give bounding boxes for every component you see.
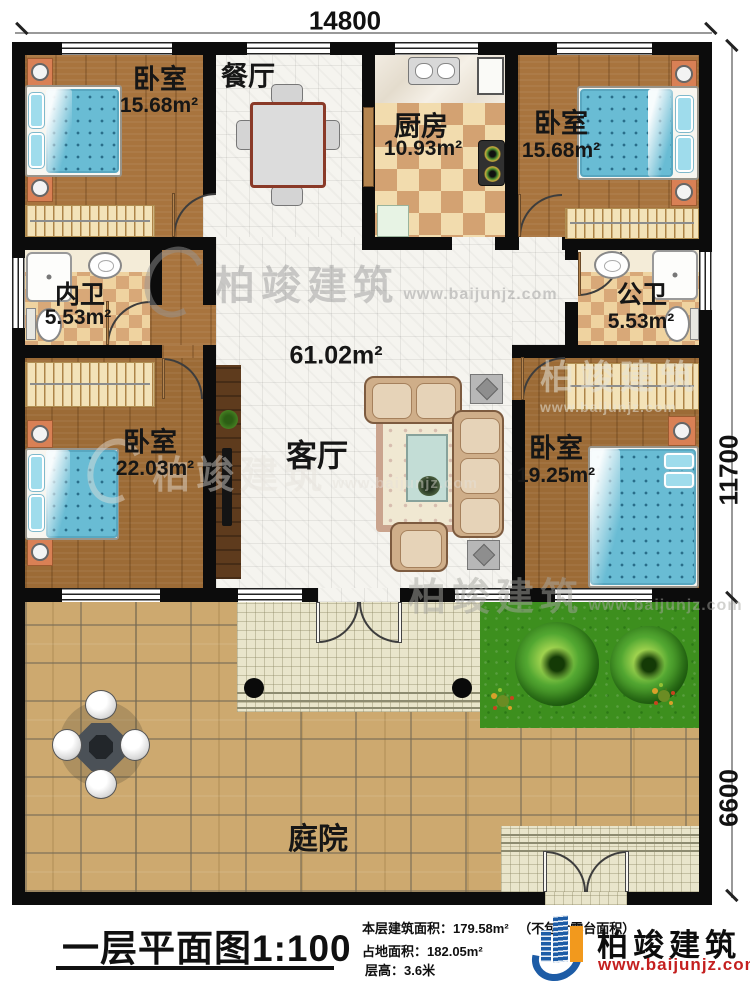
entry-step-line: [501, 842, 699, 844]
room-area-bath-public: 5.53m²: [608, 310, 675, 334]
wall-segment: [12, 42, 25, 905]
room-area-kitchen: 10.93m²: [384, 137, 462, 161]
nightstand: [27, 420, 53, 448]
pillow: [29, 93, 44, 128]
sofa-cushion: [460, 418, 500, 454]
door-leaf: [162, 358, 165, 399]
room-label-bedroom-br: 卧室: [529, 427, 583, 466]
garden-chair: [120, 729, 150, 761]
sofa-cushion: [400, 530, 442, 568]
shrub: [497, 695, 509, 707]
blanket-fold: [46, 89, 72, 173]
end-table: [470, 374, 503, 404]
porch-step-line: [237, 692, 480, 694]
stat-land-area: 占地面积：182.05m²: [362, 941, 483, 960]
porch-column: [452, 678, 472, 698]
logo-building: [570, 926, 583, 962]
stat-floor-area-value: 179.58m²: [453, 921, 509, 936]
wall-segment: [512, 400, 525, 590]
room-label-bedroom-bl: 卧室: [123, 421, 177, 460]
stat-floor-height-label: 层高：: [365, 963, 404, 978]
sofa: [452, 410, 504, 538]
wall-segment: [203, 55, 216, 195]
window: [557, 42, 652, 55]
room-area-bedroom-br: 19.25m²: [517, 464, 595, 488]
gate-door-leaf: [543, 851, 547, 892]
wall-segment: [505, 55, 518, 237]
blanket-fold: [46, 450, 70, 538]
stat-land-area-value: 182.05m²: [427, 944, 483, 959]
fridge: [477, 57, 504, 95]
window: [12, 258, 25, 328]
nightstand: [27, 58, 53, 86]
door-leaf: [578, 252, 581, 296]
garden-table: [77, 723, 125, 771]
wardrobe: [25, 362, 155, 407]
door-leaf: [172, 193, 175, 237]
end-table: [467, 540, 500, 570]
sofa-cushion: [460, 498, 500, 534]
room-label-bedroom-tr: 卧室: [534, 102, 588, 141]
title-underline: [56, 966, 334, 970]
room-area-living: 61.02m²: [289, 342, 382, 371]
right-lower-dimension-label: 6600: [714, 769, 745, 827]
nightstand: [27, 174, 53, 202]
toilet-tank: [26, 308, 36, 340]
sofa-cushion: [372, 383, 412, 419]
plant: [219, 410, 238, 429]
sink-basin: [415, 63, 433, 79]
coffee-table: [406, 434, 448, 502]
garden-chair: [85, 769, 117, 799]
dining-chair: [271, 186, 303, 206]
toilet-tank: [690, 308, 699, 340]
window: [555, 588, 652, 602]
main-door-leaf: [398, 602, 402, 643]
window: [62, 588, 160, 602]
kitchen-counter: [377, 205, 409, 237]
pillow: [676, 96, 693, 132]
wall-segment: [495, 237, 519, 250]
logo-building: [541, 930, 551, 962]
wall-segment: [512, 345, 712, 358]
porch-column: [244, 678, 264, 698]
sofa-cushion: [460, 458, 500, 494]
wall-segment: [565, 250, 578, 260]
window: [62, 42, 172, 55]
wardrobe: [565, 208, 699, 239]
company-website: www.baijunjz.com: [598, 955, 750, 975]
window: [247, 42, 330, 55]
pillow: [676, 136, 693, 172]
sink-basin: [437, 63, 455, 79]
nightstand: [668, 416, 696, 446]
burner: [484, 166, 501, 182]
garden-chair: [85, 690, 117, 720]
pillow: [29, 133, 44, 168]
window: [455, 588, 510, 602]
door-leaf: [521, 357, 524, 400]
room-area-bath-inner: 5.53m²: [45, 306, 112, 330]
room-area-bedroom-tl: 15.68m²: [120, 94, 198, 118]
room-label-bath-public: 公卫: [617, 275, 667, 311]
stove: [478, 140, 505, 186]
wall-segment: [375, 237, 452, 250]
right-upper-dimension-label: 11700: [714, 435, 745, 506]
porch-step-line: [237, 707, 480, 709]
tree: [610, 626, 688, 704]
room-area-bedroom-bl: 22.03m²: [116, 457, 194, 481]
wall-segment: [12, 345, 162, 358]
doorway-floor-patch: [162, 345, 203, 358]
porch-step-line: [237, 700, 480, 702]
kitchen-sink: [408, 57, 460, 85]
wall-segment: [150, 250, 162, 305]
blanket-fold: [648, 89, 673, 177]
wall-segment: [565, 302, 578, 345]
wall-segment: [12, 237, 216, 250]
logo-building: [553, 915, 568, 963]
entry-step-line: [501, 850, 699, 852]
main-door-leaf: [316, 602, 320, 643]
shrub: [658, 690, 670, 702]
gate-door-leaf: [625, 851, 629, 892]
wall-segment: [203, 358, 216, 590]
room-label-dining: 餐厅: [221, 55, 275, 94]
room-label-courtyard: 庭院: [288, 814, 348, 858]
plan-title: 一层平面图1:100: [62, 918, 352, 972]
garden-chair: [52, 729, 82, 761]
pillow: [29, 495, 44, 531]
window: [395, 42, 478, 55]
wall-segment: [699, 42, 712, 905]
dining-table: [250, 102, 326, 188]
top-dimension-label: 14800: [309, 6, 381, 37]
floor-plan-canvas: 14800 11700 6600: [0, 0, 750, 988]
wardrobe: [25, 205, 155, 237]
door-leaf: [518, 194, 521, 237]
room-area-bedroom-tr: 15.68m²: [522, 139, 600, 163]
table-flowers: [418, 476, 440, 496]
company-logo-icon: [531, 910, 595, 986]
sofa: [364, 376, 462, 424]
porch-floor: [237, 602, 480, 712]
window: [238, 588, 302, 602]
wall-segment: [203, 250, 216, 305]
tv: [222, 448, 232, 526]
stat-land-area-label: 占地面积：: [362, 944, 427, 959]
dining-chair: [271, 84, 303, 104]
pillow: [664, 472, 694, 488]
nightstand: [27, 538, 53, 566]
pillow: [29, 455, 44, 491]
room-label-living: 客厅: [286, 431, 348, 476]
stat-floor-height: 层高：3.6米: [365, 960, 435, 979]
stat-floor-area-label: 本层建筑面积：: [362, 921, 453, 936]
sliding-door-leaf: [363, 107, 374, 187]
burner: [484, 146, 501, 162]
entry-step-line: [501, 834, 699, 836]
stat-floor-height-value: 3.6米: [404, 963, 435, 978]
wardrobe: [565, 363, 699, 410]
wall-segment: [203, 345, 216, 358]
tree: [515, 622, 599, 706]
nightstand: [671, 60, 697, 88]
main-door-opening: [318, 588, 400, 602]
pillow: [664, 453, 694, 469]
armchair: [390, 522, 448, 572]
nightstand: [671, 178, 697, 206]
gate-opening: [545, 892, 627, 905]
window: [699, 252, 712, 310]
room-label-bedroom-tl: 卧室: [133, 58, 187, 97]
sofa-cushion: [416, 383, 456, 419]
